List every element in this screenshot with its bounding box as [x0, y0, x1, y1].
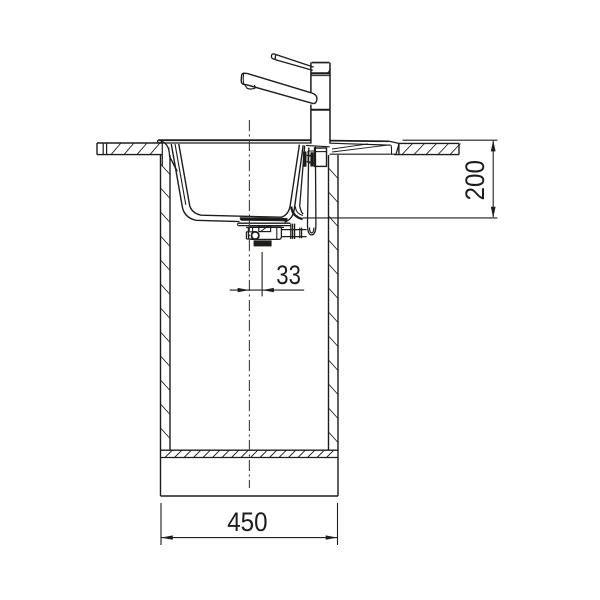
svg-text:33: 33: [276, 260, 301, 290]
svg-text:200: 200: [460, 160, 490, 201]
svg-text:450: 450: [227, 507, 267, 537]
